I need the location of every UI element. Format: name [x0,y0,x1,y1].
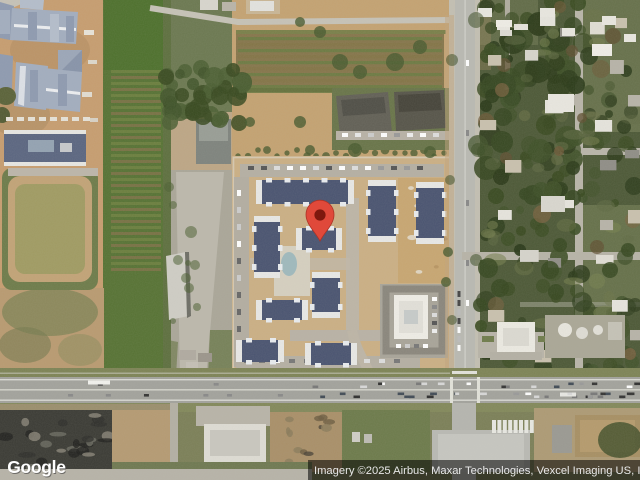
svg-text:Imagery ©2025 Airbus, Maxar Te: Imagery ©2025 Airbus, Maxar Technologies… [314,465,640,477]
svg-text:Google: Google [7,457,66,477]
